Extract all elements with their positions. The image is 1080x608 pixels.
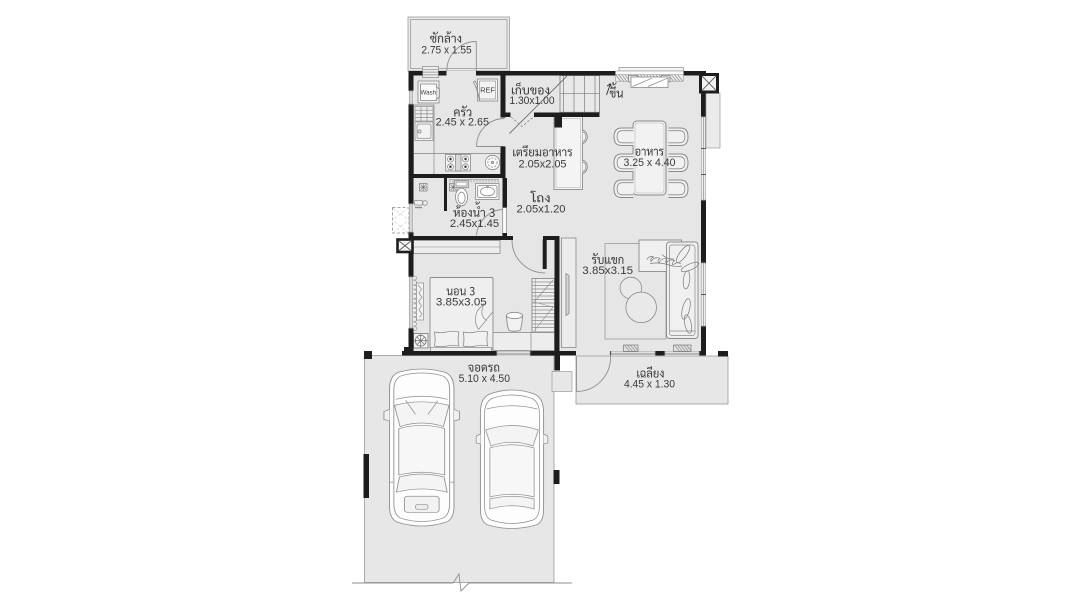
svg-text:3.85x3.15: 3.85x3.15 (582, 265, 633, 277)
svg-text:5.10 x 4.50: 5.10 x 4.50 (459, 373, 510, 385)
svg-text:2.75 x 1.55: 2.75 x 1.55 (421, 45, 471, 57)
svg-text:3.25 x 4.40: 3.25 x 4.40 (624, 157, 676, 169)
svg-text:2.45x1.45: 2.45x1.45 (450, 218, 499, 230)
svg-text:2.05x1.20: 2.05x1.20 (517, 204, 566, 216)
svg-text:2.05x2.05: 2.05x2.05 (519, 158, 567, 170)
svg-text:2.45 x 2.65: 2.45 x 2.65 (436, 117, 489, 129)
svg-text:Wash: Wash (421, 90, 437, 97)
svg-text:4.45 x 1.30: 4.45 x 1.30 (624, 378, 675, 390)
svg-text:1.30x1.00: 1.30x1.00 (509, 95, 554, 107)
svg-text:REF: REF (480, 86, 495, 95)
svg-text:3.85x3.05: 3.85x3.05 (436, 297, 487, 309)
